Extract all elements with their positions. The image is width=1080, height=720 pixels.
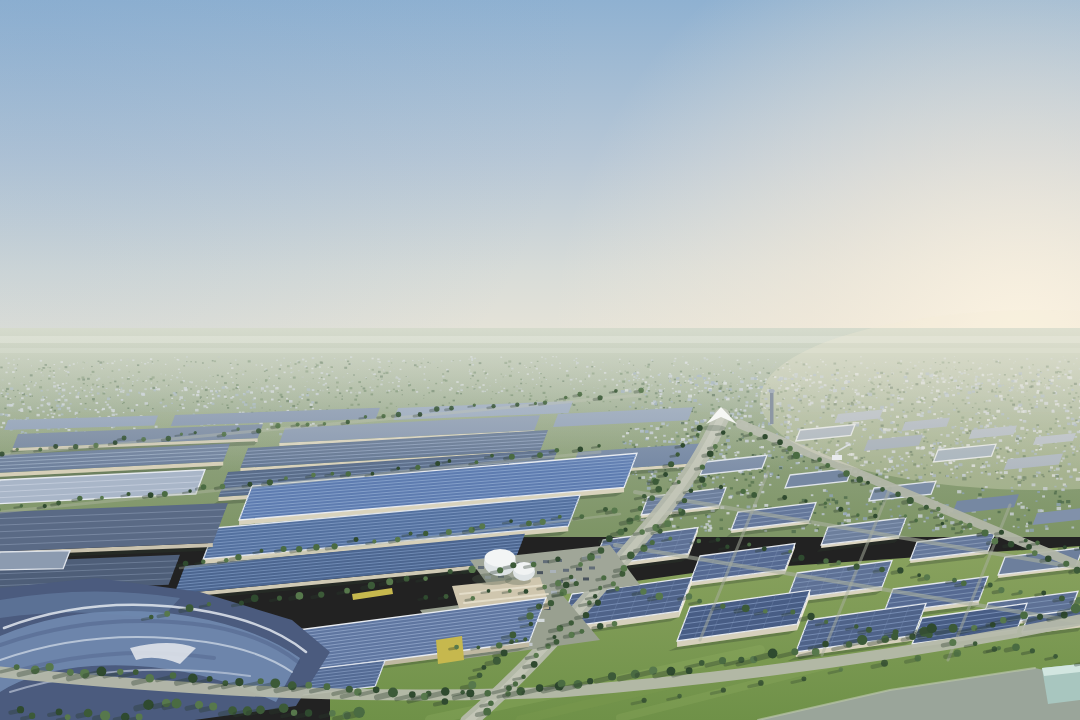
industrial-park-aerial-rendering (0, 0, 1080, 720)
aerial-render-viewport (0, 0, 1080, 720)
